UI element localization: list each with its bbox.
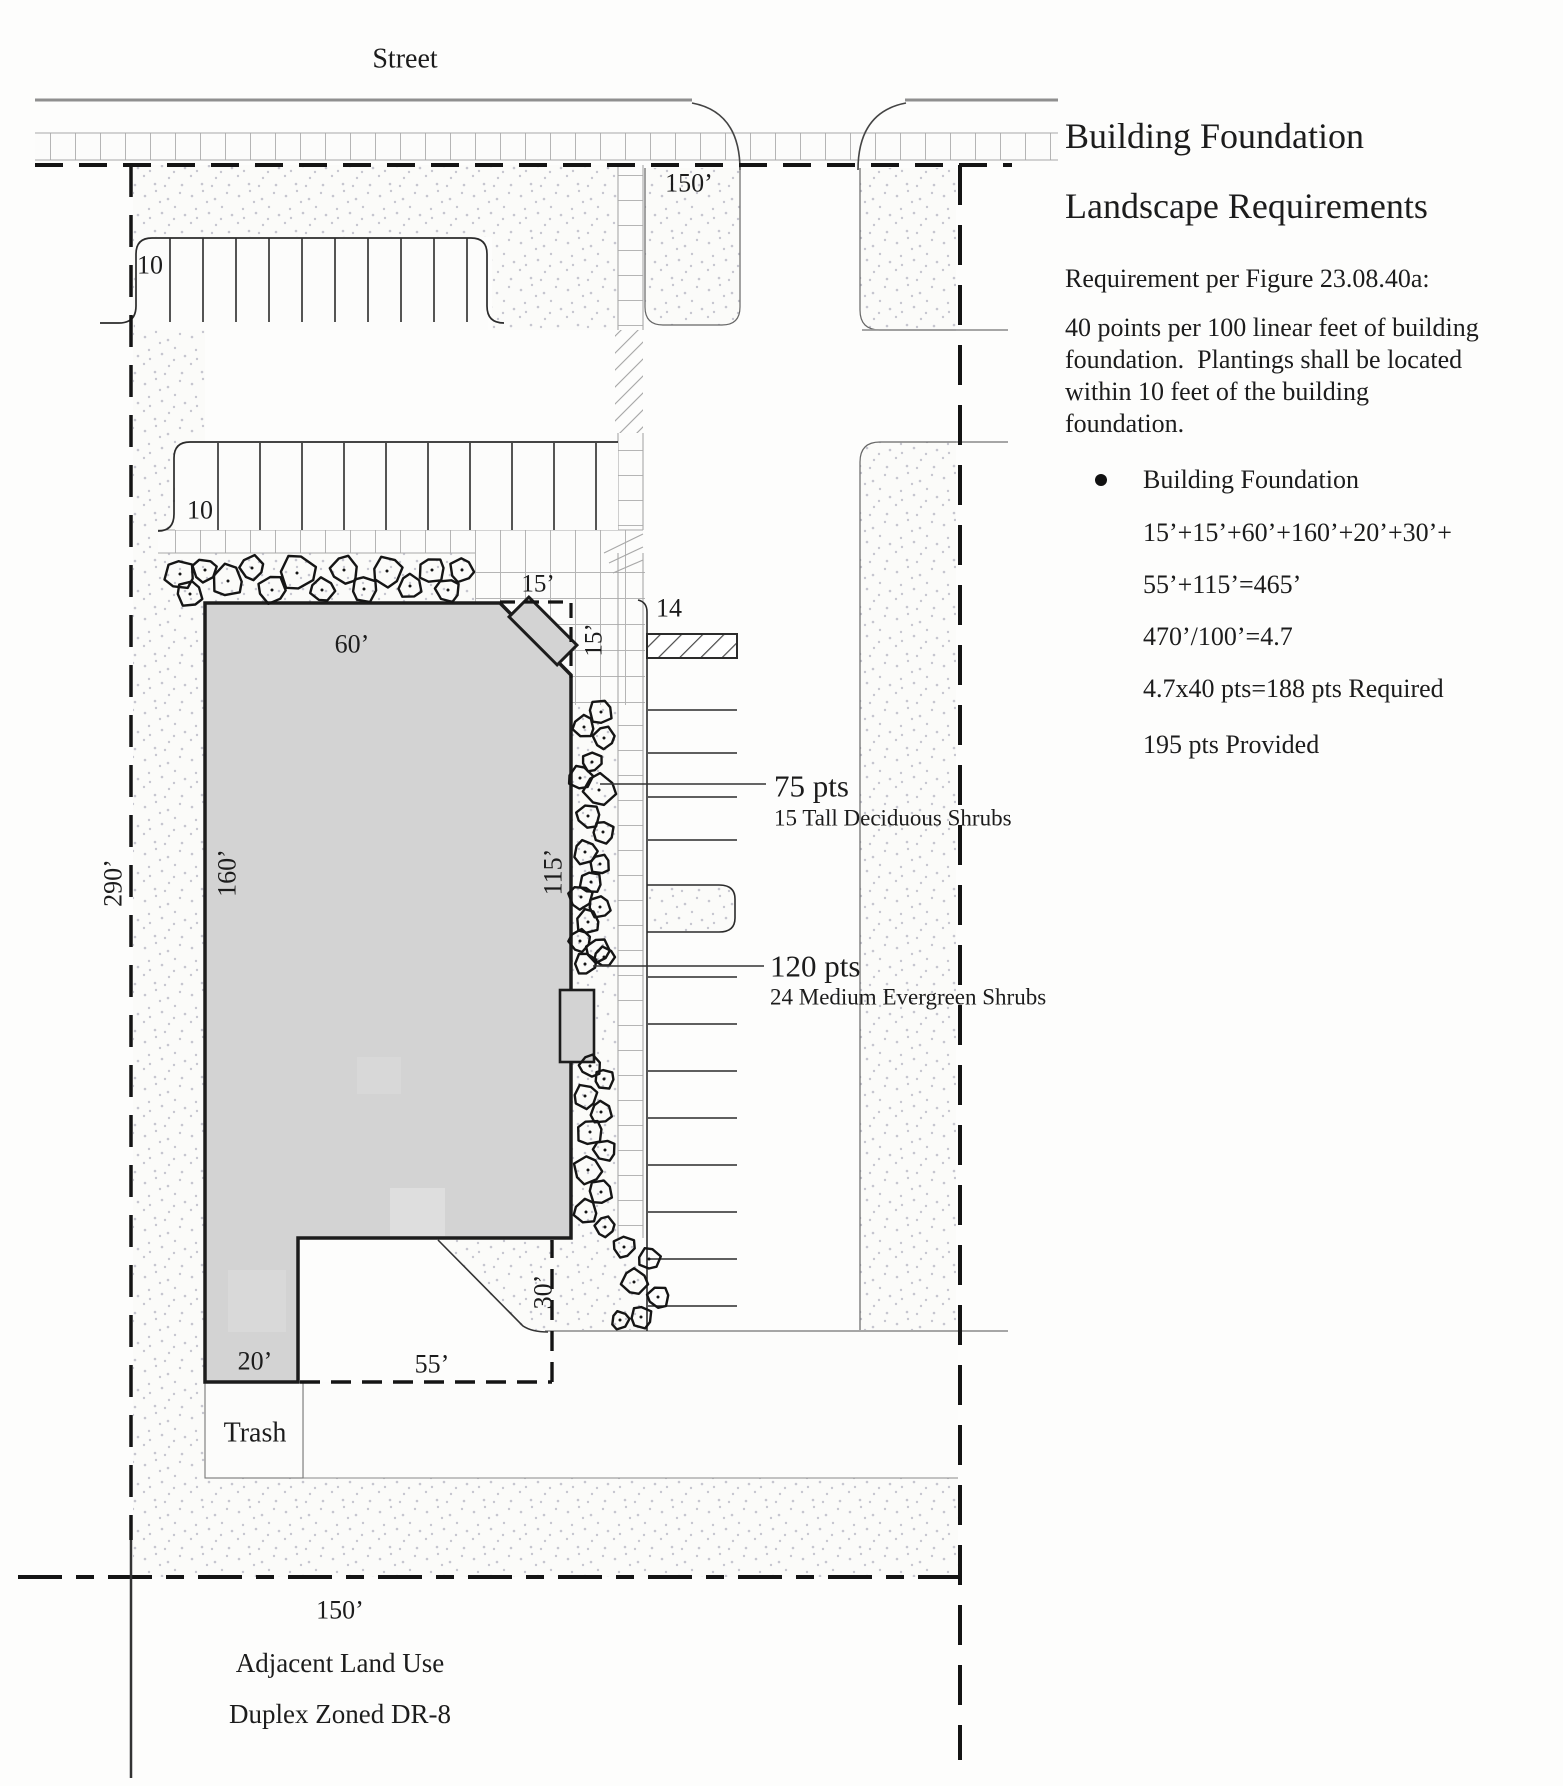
callout-75pts-points: 75 pts [774,769,849,804]
shrub-center-dot [604,1149,607,1152]
dim-leg: 20’ [238,1347,273,1376]
row2-count-label: 10 [187,496,213,525]
sidewalk-street-band [35,133,1058,160]
island-right-lower [860,442,956,1330]
site-plan-drawing: Street 150’ 10 10 15’ 15’ 60’ 14 115’ 16… [0,0,1563,1786]
dim-building-left: 160’ [213,849,242,897]
roof-detail-2 [228,1270,286,1332]
sidewalk-strip-lower [618,705,643,1238]
dim-chamfer-top: 15’ [521,571,554,598]
panel-body-line1: 40 points per 100 linear feet of buildin… [1065,313,1479,342]
shrub-center-dot [619,1319,622,1322]
dim-notch-side: 30’ [529,1275,558,1310]
shrub-center-dot [579,777,582,780]
shrub-center-dot [603,956,606,959]
shrub-center-dot [409,585,412,588]
shrub-center-dot [587,921,590,924]
shrub-center-dot [589,1131,592,1134]
panel-body-line4: foundation. [1065,409,1184,438]
shrub-center-dot [603,737,606,740]
shrub-center-dot [587,815,590,818]
panel-calc-line3: 470’/100’=4.7 [1143,622,1293,651]
shrub-center-dot [584,963,587,966]
adjacent-zoning-label: Duplex Zoned DR-8 [229,1699,451,1729]
panel-calc-line2: 55’+115’=465’ [1143,570,1301,599]
panel-calc-line5: 195 pts Provided [1143,730,1319,759]
panel-title-line2: Landscape Requirements [1065,186,1428,226]
shrub-center-dot [227,580,230,583]
shrub-center-dot [583,726,586,729]
callout-75pts-desc: 15 Tall Deciduous Shrubs [774,806,1012,831]
shrub-center-dot [589,1065,592,1068]
shrub-center-dot [431,569,434,572]
callout-120pts-desc: 24 Medium Evergreen Shrubs [770,985,1046,1010]
dim-building-top: 60’ [335,630,370,659]
shrub-center-dot [580,896,583,899]
shrub-center-dot [204,569,207,572]
shrub-center-dot [600,1191,603,1194]
dim-building-right: 115’ [539,849,568,896]
ramp-hatch-strip [615,330,643,433]
shrub-center-dot [587,1169,590,1172]
parking-row-1-pad [135,237,488,330]
shrub-center-dot [189,593,192,596]
dim-site-depth: 290’ [99,859,128,907]
shrub-center-dot [386,570,389,573]
shrub-center-dot [585,1211,588,1214]
sidewalk-strip-upper [618,165,643,330]
shrub-center-dot [590,881,593,884]
shrub-center-dot [648,1258,651,1261]
shrub-center-dot [179,573,182,576]
island-right-upper [860,168,956,330]
shrub-center-dot [579,940,582,943]
dim-chamfer-side: 15’ [581,623,608,656]
shrub-center-dot [584,851,587,854]
row1-count-label: 10 [137,251,163,280]
dim-notch-bottom: 55’ [415,1350,450,1379]
shrub-center-dot [584,1095,587,1098]
panel-bullet-label: Building Foundation [1143,465,1359,494]
site-plan-page: Street 150’ 10 10 15’ 15’ 60’ 14 115’ 16… [0,0,1563,1786]
shrub-center-dot [343,569,346,572]
panel-body-line3: within 10 feet of the building [1065,377,1369,406]
shrub-center-dot [600,711,603,714]
parking-row-2 [158,442,618,531]
shrub-center-dot [602,831,605,834]
shrub-center-dot [603,1078,606,1081]
street-label: Street [372,44,438,75]
landscape-bottom-band [133,1478,958,1577]
shrub-center-dot [251,567,254,570]
landscape-left-band [133,165,205,1577]
bullet-icon [1095,474,1107,486]
shrub-center-dot [591,761,594,764]
dim-bottom-frontage: 150’ [316,1596,364,1625]
sidewalk-strip-mid [618,433,643,530]
adjacent-land-use-label: Adjacent Land Use [236,1648,444,1678]
shrub-center-dot [447,589,450,592]
shrub-center-dot [321,589,324,592]
hatched-stall [647,634,737,658]
shrub-center-dot [599,906,602,909]
shrub-center-dot [461,569,464,572]
panel-subtitle: Requirement per Figure 23.08.40a: [1065,264,1430,293]
shrub-center-dot [296,572,299,575]
sidewalk-band-2 [158,530,643,553]
shrub-center-dot [633,1281,636,1284]
side-canopy [560,990,594,1062]
callout-120pts-points: 120 pts [770,949,860,984]
panel-title-line1: Building Foundation [1065,116,1364,156]
side-count-label: 14 [656,594,682,623]
shrub-center-dot [657,1296,660,1299]
shrub-center-dot [363,588,366,591]
roof-detail-3 [357,1057,401,1094]
parking-island [647,885,735,932]
dim-top-frontage: 150’ [665,169,713,198]
panel-calc-line4: 4.7x40 pts=188 pts Required [1143,674,1444,703]
shrub-center-dot [640,1316,643,1319]
panel-body-line2: foundation. Plantings shall be located [1065,345,1462,374]
shrub-center-dot [598,789,601,792]
roof-detail-1 [390,1188,445,1236]
shrub-center-dot [271,589,274,592]
shrub-center-dot [604,1226,607,1229]
shrub-center-dot [599,863,602,866]
panel-calc-line1: 15’+15’+60’+160’+20’+30’+ [1143,518,1452,547]
trash-label: Trash [224,1418,287,1449]
shrub-center-dot [600,1111,603,1114]
parking-row-2-pad [175,442,618,530]
shrub-center-dot [623,1246,626,1249]
